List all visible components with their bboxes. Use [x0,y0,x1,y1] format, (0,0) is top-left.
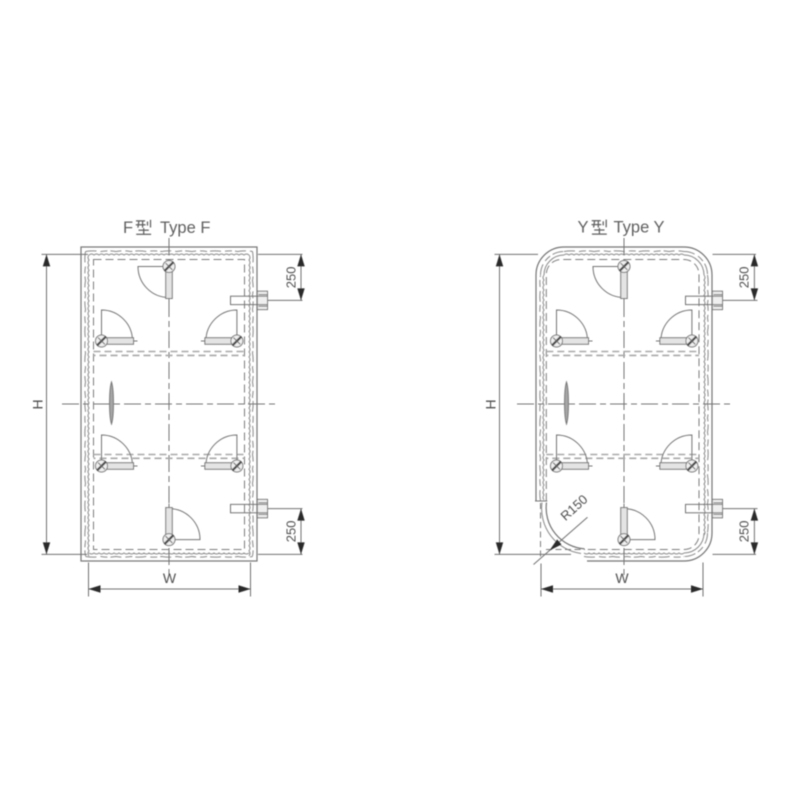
svg-text:W: W [163,570,177,586]
svg-text:Y: Y [578,219,589,237]
svg-text:H: H [482,399,498,409]
svg-text:H: H [29,399,45,409]
svg-text:250: 250 [283,521,298,543]
svg-text:F: F [123,219,133,237]
svg-text:Type F: Type F [160,219,210,237]
svg-text:250: 250 [283,267,298,289]
svg-text:W: W [615,570,629,586]
svg-text:250: 250 [737,521,752,543]
svg-text:Type Y: Type Y [614,219,665,237]
svg-text:250: 250 [737,267,752,289]
